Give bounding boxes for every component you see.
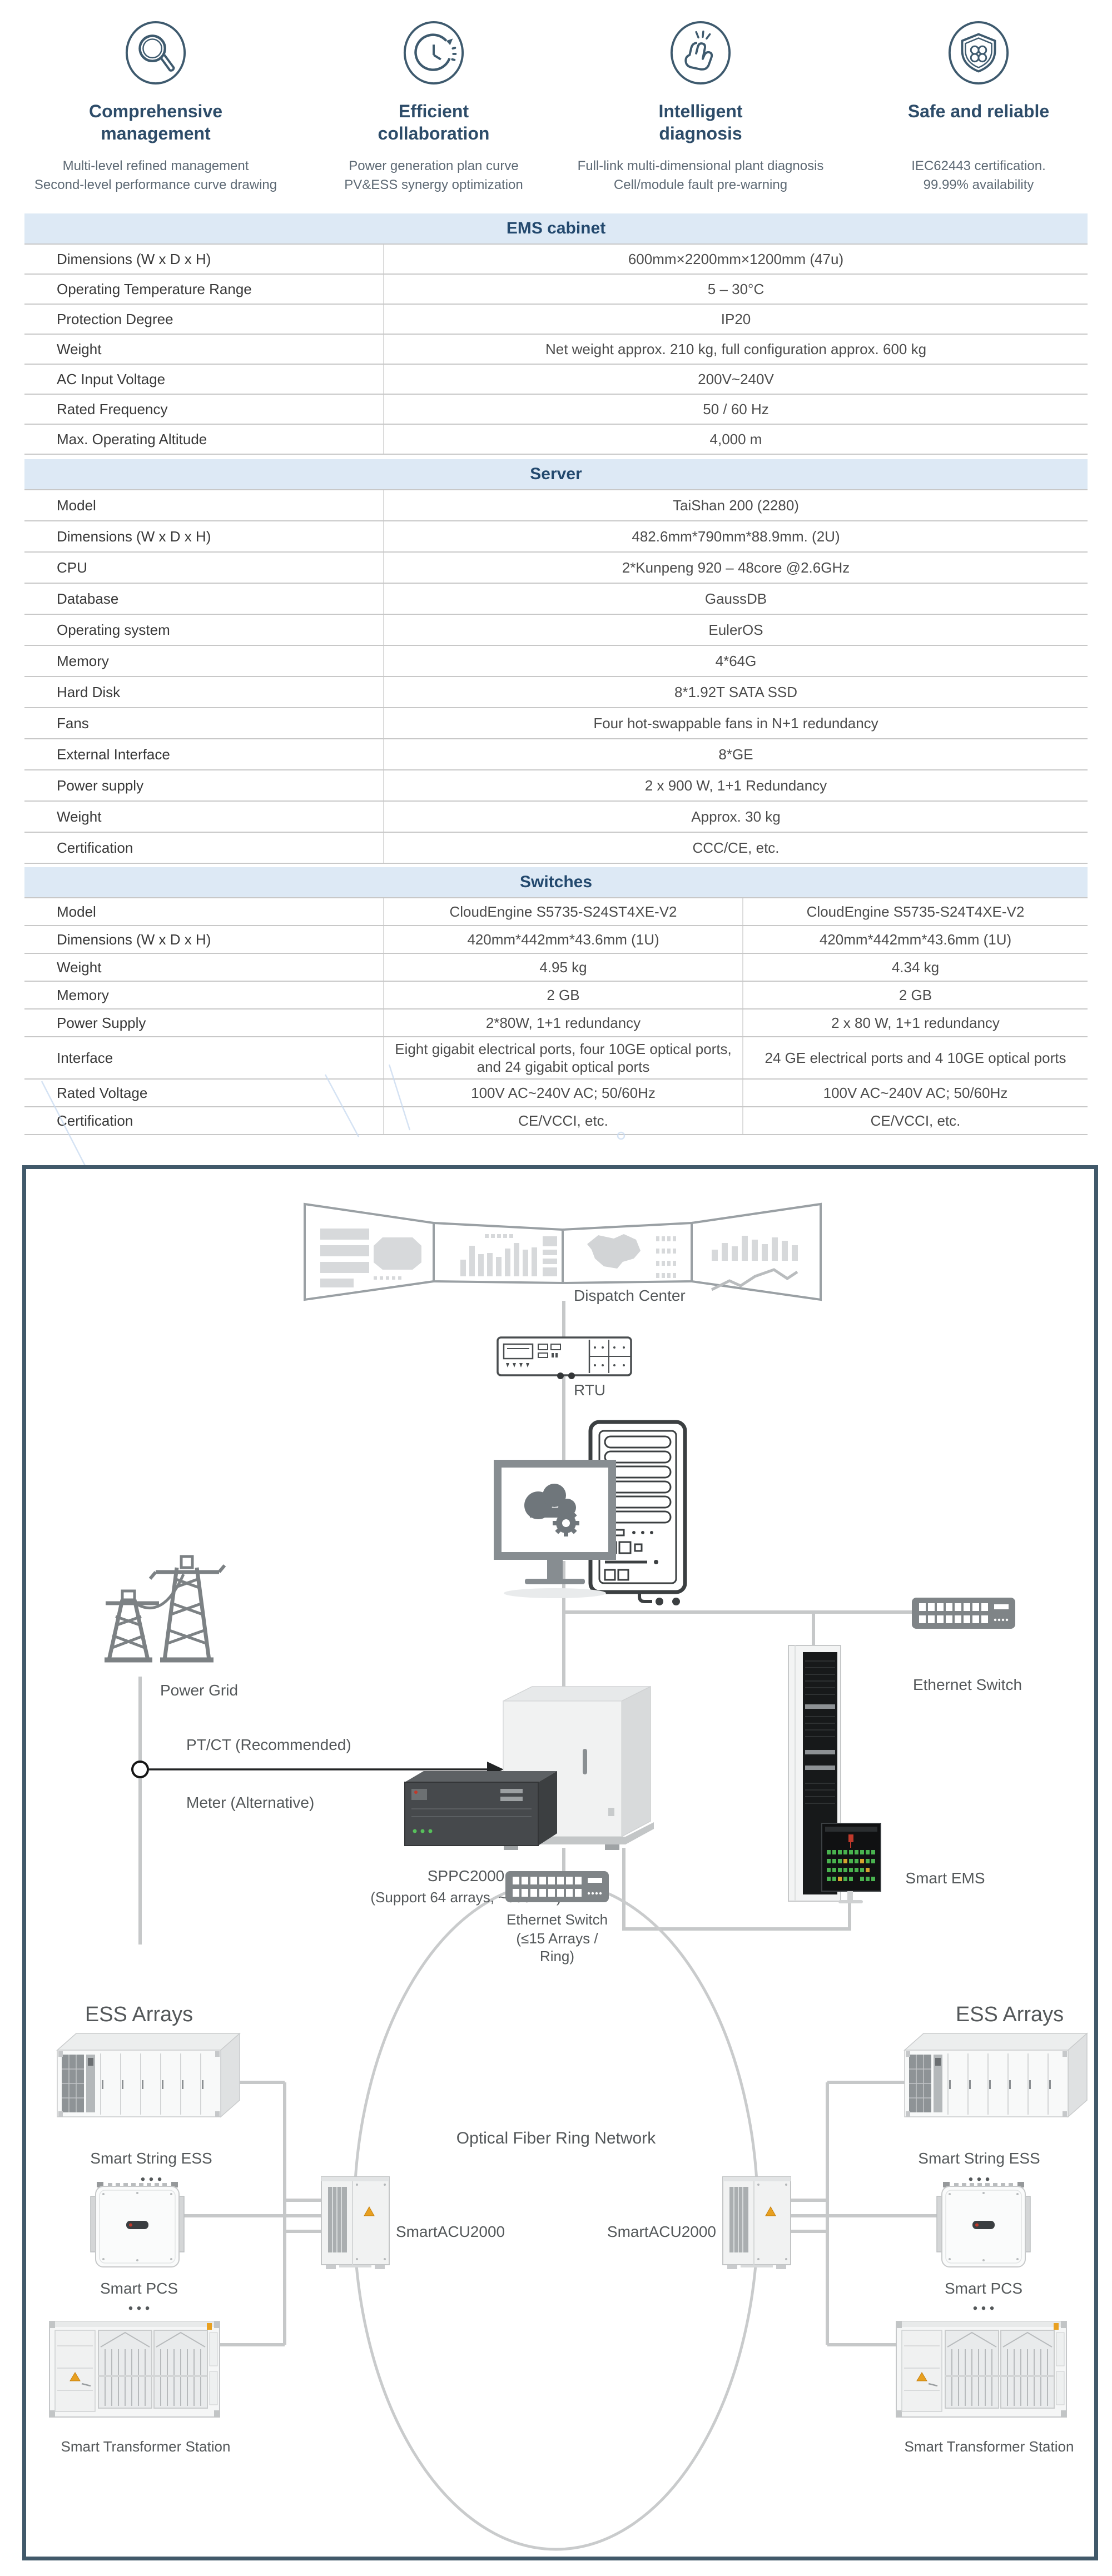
table-row: Dimensions (W x D x H)482.6mm*790mm*88.9… [24,521,1088,553]
spec-value: CE/VCCI, etc. [383,1107,742,1134]
feature-intelligent-diagnosis: Intelligentdiagnosis Full-link multi-dim… [556,20,845,213]
spec-value: 50 / 60 Hz [383,395,1088,424]
smartacu2000-icon [321,2177,389,2269]
spec-value: 2*Kunpeng 920 – 48core @2.6GHz [383,553,1088,583]
diagram-heading: ESS Arrays [85,2003,193,2026]
spec-value: 100V AC~240V AC; 50/60Hz [383,1080,742,1106]
system-architecture-diagram: Dispatch Center RTU [22,1165,1098,2560]
spec-value: GaussDB [383,584,1088,614]
table-rows: Dimensions (W x D x H)600mm×2200mm×1200m… [24,243,1088,455]
diagram-label: Smart Transformer Station [61,2438,231,2455]
spec-label: Model [24,490,383,520]
diagram-label: Smart PCS [945,2280,1022,2297]
feature-subtitle: Power generation plan curvePV&ESS synerg… [344,157,523,195]
table-row: Memory4*64G [24,646,1088,677]
diagram-label: Smart String ESS [918,2150,1040,2167]
table-title: EMS cabinet [24,213,1088,243]
table-rows: ModelCloudEngine S5735-S24ST4XE-V2CloudE… [24,897,1088,1135]
table-row: Operating systemEulerOS [24,615,1088,646]
feature-title: Comprehensivemanagement [89,100,222,148]
feature-highlights: Comprehensivemanagement Multi-level refi… [0,0,1112,213]
smart-transformer-station-icon [49,2321,220,2417]
spec-value: 4*64G [383,646,1088,676]
table-row: ModelTaiShan 200 (2280) [24,490,1088,521]
smart-pcs-icon [91,2182,184,2267]
spec-value: EulerOS [383,615,1088,645]
table-title: Switches [24,867,1088,897]
spec-label: Model [24,898,383,925]
table-row: Rated Frequency50 / 60 Hz [24,395,1088,425]
spec-value: 420mm*442mm*43.6mm (1U) [383,926,742,953]
spec-value: 600mm×2200mm×1200mm (47u) [383,245,1088,273]
table-row: WeightNet weight approx. 210 kg, full co… [24,335,1088,365]
spec-label: Operating system [24,615,383,645]
rtu-icon [498,1337,631,1379]
table-row: CertificationCE/VCCI, etc.CE/VCCI, etc. [24,1107,1088,1135]
spec-value: 4.34 kg [742,954,1088,981]
switches-table: Switches ModelCloudEngine S5735-S24ST4XE… [24,867,1088,1135]
spec-label: Weight [24,954,383,981]
smart-transformer-station-icon [896,2321,1066,2417]
table-row: Dimensions (W x D x H)420mm*442mm*43.6mm… [24,926,1088,954]
spec-label: Dimensions (W x D x H) [24,521,383,551]
spec-label: Dimensions (W x D x H) [24,245,383,273]
spec-value: CCC/CE, etc. [383,833,1088,863]
spec-value: 420mm*442mm*43.6mm (1U) [742,926,1088,953]
diagram-label: Ethernet Switch [913,1676,1022,1693]
snap-fingers-icon [668,20,733,86]
diagram-label: Optical Fiber Ring Network [456,2129,656,2147]
ems-cabinet-table: EMS cabinet Dimensions (W x D x H)600mm×… [24,213,1088,455]
spec-label: Hard Disk [24,677,383,707]
table-row: AC Input Voltage200V~240V [24,365,1088,395]
spec-value: 2*80W, 1+1 redundancy [383,1009,742,1036]
clock-sync-icon [401,20,466,86]
gear-icon [553,1510,579,1536]
smart-ems-icon [788,1645,881,1903]
spec-value: 8*GE [383,739,1088,769]
spec-value: 4.95 kg [383,954,742,981]
spec-value: TaiShan 200 (2280) [383,490,1088,520]
diagram-canvas: Dispatch Center RTU [26,1169,1094,2557]
diagram-label: RTU [574,1381,605,1399]
spec-value: Net weight approx. 210 kg, full configur… [383,335,1088,364]
table-row: Weight4.95 kg4.34 kg [24,954,1088,982]
feature-comprehensive-management: Comprehensivemanagement Multi-level refi… [0,20,311,213]
ellipsis-dots: • • • [973,2301,995,2316]
spec-value: 4,000 m [383,425,1088,454]
table-row: Rated Voltage100V AC~240V AC; 50/60Hz100… [24,1080,1088,1107]
spec-value: 2 x 900 W, 1+1 Redundancy [383,770,1088,800]
table-row: Max. Operating Altitude4,000 m [24,425,1088,455]
table-row: Hard Disk8*1.92T SATA SSD [24,677,1088,708]
spec-label: Weight [24,335,383,364]
table-row: InterfaceEight gigabit electrical ports,… [24,1037,1088,1080]
feature-subtitle: Multi-level refined managementSecond-lev… [34,157,277,195]
sppc2000-icon [405,1687,654,1850]
spec-value: CloudEngine S5735-S24ST4XE-V2 [383,898,742,925]
feature-safe-reliable: Safe and reliable IEC62443 certification… [845,20,1112,213]
spec-label: Certification [24,833,383,863]
spec-label: Interface [24,1037,383,1078]
spec-label: Rated Voltage [24,1080,383,1106]
table-title: Server [24,459,1088,489]
table-row: DatabaseGaussDB [24,584,1088,615]
spec-value: 2 GB [742,982,1088,1008]
diagram-label: Smart Transformer Station [905,2438,1074,2455]
dispatch-center-screens [305,1204,821,1300]
feature-efficient-collaboration: Efficientcollaboration Power generation … [311,20,556,213]
spec-value: Four hot-swappable fans in N+1 redundanc… [383,708,1088,738]
spec-label: Power Supply [24,1009,383,1036]
spec-value: 2 GB [383,982,742,1008]
table-rows: ModelTaiShan 200 (2280)Dimensions (W x D… [24,489,1088,864]
server-table: Server ModelTaiShan 200 (2280)Dimensions… [24,459,1088,864]
table-row: CertificationCCC/CE, etc. [24,833,1088,864]
product-spec-page: Comprehensivemanagement Multi-level refi… [0,0,1112,2576]
spec-value: 100V AC~240V AC; 50/60Hz [742,1080,1088,1106]
spec-label: External Interface [24,739,383,769]
feature-title: Safe and reliable [908,100,1049,148]
spec-label: Power supply [24,770,383,800]
spec-label: Weight [24,802,383,832]
shield-icon [946,20,1011,86]
spec-label: Fans [24,708,383,738]
diagram-label: (≤15 Arrays / [516,1930,598,1947]
spec-label: Protection Degree [24,305,383,334]
diagram-label: Ring) [540,1948,574,1965]
diagram-label: Smart String ESS [90,2150,212,2167]
diagram-heading: ESS Arrays [956,2003,1064,2026]
table-row: Memory2 GB2 GB [24,982,1088,1009]
diagram-label: Ethernet Switch [507,1911,608,1928]
diagram-label: Smart EMS [905,1869,985,1887]
table-row: ModelCloudEngine S5735-S24ST4XE-V2CloudE… [24,898,1088,926]
spec-value: 200V~240V [383,365,1088,394]
optical-ring [354,1882,758,2549]
spec-label: CPU [24,553,383,583]
diagram-label: PT/CT (Recommended) [186,1736,351,1753]
table-row: Power supply2 x 900 W, 1+1 Redundancy [24,770,1088,802]
feature-title: Intelligentdiagnosis [658,100,742,148]
diagram-label: Smart PCS [100,2280,178,2297]
spec-value: 5 – 30°C [383,275,1088,304]
spec-value: IP20 [383,305,1088,334]
diagram-label: SmartACU2000 [607,2223,716,2240]
smart-string-ess-icon [57,2033,240,2117]
spec-value: Eight gigabit electrical ports, four 10G… [383,1037,742,1078]
spec-label: Rated Frequency [24,395,383,424]
table-row: Protection DegreeIP20 [24,305,1088,335]
spec-label: Database [24,584,383,614]
spec-value: 482.6mm*790mm*88.9mm. (2U) [383,521,1088,551]
spec-label: AC Input Voltage [24,365,383,394]
table-row: Power Supply2*80W, 1+1 redundancy2 x 80 … [24,1009,1088,1037]
spec-label: Certification [24,1107,383,1134]
table-row: FansFour hot-swappable fans in N+1 redun… [24,708,1088,739]
table-row: WeightApprox. 30 kg [24,802,1088,833]
diagram-label: Dispatch Center [574,1287,686,1304]
diagram-label: SPPC2000 [428,1867,505,1884]
ethernet-switch-icon [505,1871,609,1902]
diagram-label: SmartACU2000 [396,2223,505,2240]
spec-value: Approx. 30 kg [383,802,1088,832]
spec-value: 24 GE electrical ports and 4 10GE optica… [742,1037,1088,1078]
ethernet-switch-icon [912,1598,1015,1629]
diagram-label: Meter (Alternative) [186,1794,314,1811]
spec-label: Operating Temperature Range [24,275,383,304]
table-row: Dimensions (W x D x H)600mm×2200mm×1200m… [24,245,1088,275]
spec-value: CE/VCCI, etc. [742,1107,1088,1134]
spec-label: Max. Operating Altitude [24,425,383,454]
feature-subtitle: Full-link multi-dimensional plant diagno… [578,157,824,195]
diagram-label: Power Grid [160,1682,238,1699]
table-row: Operating Temperature Range5 – 30°C [24,275,1088,305]
grid-tap-node [132,1762,148,1777]
spec-label: Memory [24,982,383,1008]
spec-value: 2 x 80 W, 1+1 redundancy [742,1009,1088,1036]
spec-value: CloudEngine S5735-S24T4XE-V2 [742,898,1088,925]
ellipsis-dots: • • • [128,2301,150,2316]
spec-label: Dimensions (W x D x H) [24,926,383,953]
magnifier-icon [123,20,188,86]
spec-label: Memory [24,646,383,676]
spec-value: 8*1.92T SATA SSD [383,677,1088,707]
table-row: CPU2*Kunpeng 920 – 48core @2.6GHz [24,553,1088,584]
smart-string-ess-icon [905,2033,1087,2117]
smartacu2000-icon [723,2177,791,2269]
power-grid-icon [105,1556,225,1660]
smart-pcs-icon [937,2182,1030,2267]
table-row: External Interface8*GE [24,739,1088,770]
feature-subtitle: IEC62443 certification.99.99% availabili… [911,157,1045,195]
feature-title: Efficientcollaboration [378,100,490,148]
